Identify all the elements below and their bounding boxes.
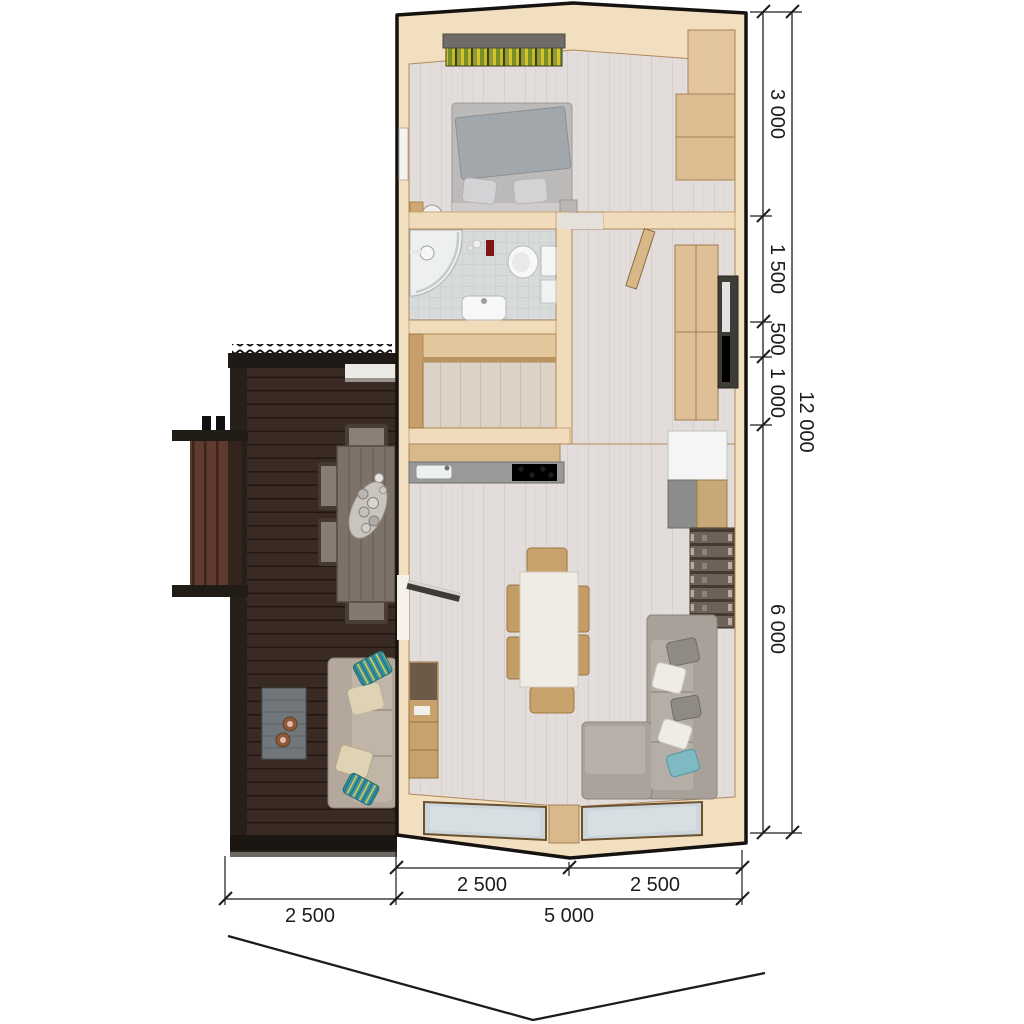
outdoor-chair-cushion <box>321 466 337 506</box>
toilet-seat <box>512 252 530 272</box>
cup-inner <box>287 721 293 727</box>
decor-ball <box>359 507 369 517</box>
closet-shelf-edge <box>423 357 556 362</box>
dining-chair <box>527 548 567 574</box>
window-pier <box>549 805 579 843</box>
dining-chair <box>507 585 521 632</box>
shower-head <box>420 246 434 260</box>
dim-label-house-width: 5 000 <box>544 905 594 927</box>
ladder-bottom-rail <box>172 585 248 597</box>
entrance-door-glass <box>722 282 730 332</box>
red-bottle <box>486 240 494 256</box>
dim-label-3000: 3 000 <box>766 89 788 139</box>
dim-label-6000: 6 000 <box>766 604 788 654</box>
house <box>397 3 746 858</box>
terrace-bottom-shadow <box>230 850 397 857</box>
floor-plan-page: 3 000 1 500 500 1 000 6 000 12 000 2 500… <box>0 0 1024 1024</box>
kitchen-faucet <box>445 466 450 471</box>
fridge <box>668 431 727 480</box>
toilet-tank <box>541 246 556 276</box>
kitchen <box>409 444 564 483</box>
entrance-door <box>718 276 738 388</box>
dim-label-500: 500 <box>766 322 788 355</box>
clothes-rail-canopy <box>443 34 565 48</box>
burner <box>548 472 553 477</box>
sofa-seat-cushion <box>585 726 645 774</box>
wall-bedroom-left <box>409 212 557 229</box>
dim-label-1500: 1 500 <box>766 244 788 294</box>
outdoor-chair-cushion <box>321 522 337 562</box>
dim-label-1000: 1 000 <box>766 368 788 418</box>
dim-label-window-left: 2 500 <box>457 874 507 896</box>
kitchen-upper-cabinet <box>409 444 560 462</box>
decor-knob <box>375 474 384 483</box>
tv-stand <box>409 662 438 778</box>
terrace <box>172 344 397 857</box>
toilet <box>508 246 556 278</box>
bedroom-wardrobe-upper <box>688 30 735 94</box>
entry-hall <box>557 213 738 444</box>
ladder-planks <box>190 441 232 587</box>
closet-side-cabinet <box>409 334 423 428</box>
burner <box>529 472 534 477</box>
bed <box>452 103 572 220</box>
bedroom-window <box>399 128 408 180</box>
decor-knob <box>380 487 387 494</box>
shower-arm <box>410 250 422 254</box>
bedroom <box>399 30 735 226</box>
outdoor-chair-cushion <box>349 600 384 620</box>
dim-label-terrace-width: 2 500 <box>285 905 335 927</box>
floor-plan-canvas: 3 000 1 500 500 1 000 6 000 12 000 2 500… <box>0 0 1024 1024</box>
ladder-top-rail <box>172 430 248 441</box>
bed-pillow <box>462 177 497 204</box>
wall-mid-vertical <box>556 212 572 444</box>
dining-chair <box>530 687 574 713</box>
terrace-shelf-shadow <box>345 378 397 382</box>
wall-bath-closet <box>409 320 556 334</box>
terrace-door-opening <box>397 575 409 640</box>
bed-blanket <box>455 106 571 179</box>
decor-ball <box>369 516 379 526</box>
dim-label-window-right: 2 500 <box>630 874 680 896</box>
cup-inner <box>280 737 286 743</box>
tv-screen <box>410 663 437 700</box>
decor-ball <box>362 524 371 533</box>
wall-kitchen-north <box>409 428 570 444</box>
tv-stand-decor <box>414 706 430 715</box>
slope-marker-line <box>228 936 765 1020</box>
bottle <box>473 240 481 248</box>
tall-cabinet-gray <box>668 480 697 528</box>
outdoor-chair-cushion <box>349 428 384 446</box>
outdoor-sofa <box>328 650 397 808</box>
bed-pillow <box>513 178 548 205</box>
decor-ball <box>358 489 368 499</box>
entrance-door-panel <box>722 336 730 382</box>
ladder-side <box>228 441 242 587</box>
tall-cabinet-wood <box>697 480 727 528</box>
sink-faucet <box>481 298 487 304</box>
burner <box>518 466 523 471</box>
bathroom <box>409 229 556 320</box>
living-room <box>397 431 735 807</box>
burner <box>540 466 545 471</box>
terrace-coffee-table <box>262 688 306 759</box>
wall-bedroom-right <box>603 212 735 229</box>
decor-ball <box>368 498 379 509</box>
bathroom-cabinet <box>541 280 556 303</box>
dining-table <box>520 572 578 687</box>
open-shelving <box>690 528 734 628</box>
terrace-shelf <box>345 364 397 378</box>
cooktop <box>512 464 557 481</box>
bottle <box>467 245 473 251</box>
south-windows <box>424 802 702 843</box>
dining-chair <box>507 637 521 679</box>
terrace-ladder <box>172 416 248 597</box>
dim-label-12000: 12 000 <box>795 391 817 452</box>
bedroom-door-opening <box>557 213 603 229</box>
closet-room <box>409 334 556 428</box>
pillow-gray <box>670 695 701 722</box>
